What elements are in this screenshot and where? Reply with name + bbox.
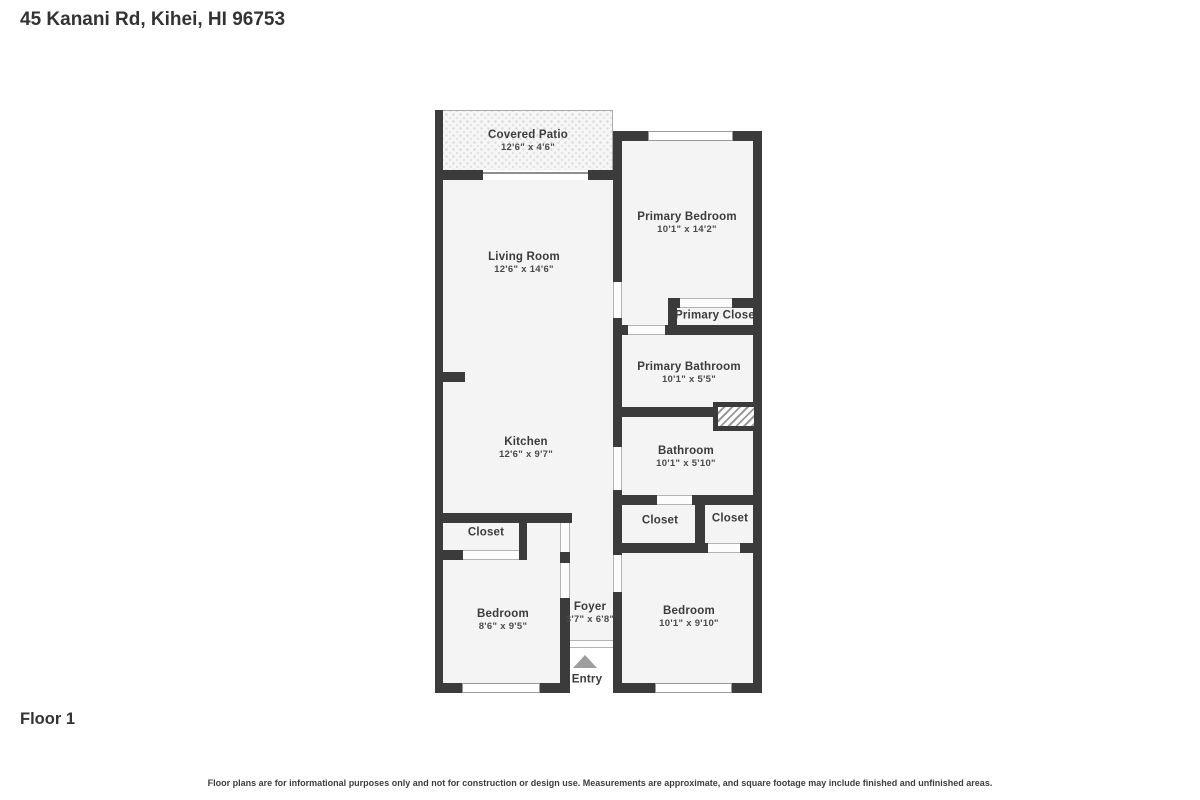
room-name: Bedroom — [659, 605, 719, 618]
door-opening — [708, 543, 740, 553]
address-title: 45 Kanani Rd, Kihei, HI 96753 — [20, 9, 285, 31]
wall — [519, 513, 527, 560]
room-label-closet-right: Closet — [712, 512, 748, 525]
wall — [435, 110, 443, 693]
sliding-door — [483, 170, 588, 180]
door-opening — [463, 550, 519, 560]
door-opening — [613, 282, 622, 318]
room-label-closet-left: Closet — [468, 526, 504, 539]
utility-hatch — [713, 402, 759, 431]
wall — [613, 407, 715, 417]
room-name: Bathroom — [656, 445, 716, 458]
disclaimer-text: Floor plans are for informational purpos… — [0, 778, 1200, 788]
door-opening — [680, 298, 732, 308]
room-dims: 12'6" x 9'7" — [499, 449, 553, 461]
room-label-kitchen: Kitchen 12'6" x 9'7" — [499, 436, 553, 462]
room-name: Closet — [468, 526, 504, 539]
floor-label: Floor 1 — [20, 710, 75, 729]
wall — [665, 325, 762, 335]
door-opening — [613, 555, 622, 592]
door-opening — [628, 325, 665, 335]
room-dims: 10'1" x 5'10" — [656, 458, 716, 470]
door-opening — [560, 563, 570, 598]
room-name: Closet — [642, 514, 678, 527]
room-name: Closet — [712, 512, 748, 525]
wall — [740, 543, 762, 553]
wall — [443, 170, 483, 180]
room-name: Foyer — [566, 601, 615, 614]
room-label-foyer: Foyer 3'7" x 6'8" — [566, 601, 615, 627]
room-label-closet-hall: Closet — [642, 514, 678, 527]
room-dims: 10'1" x 9'10" — [659, 618, 719, 630]
room-label-primary-closet: Primary Closet — [675, 309, 759, 322]
room-name: Primary Bathroom — [637, 361, 741, 374]
window — [655, 683, 732, 693]
door-opening — [657, 495, 692, 505]
wall — [613, 592, 622, 683]
wall — [613, 495, 657, 505]
room-label-primary-bathroom: Primary Bathroom 10'1" x 5'5" — [637, 361, 741, 387]
room-dims: 10'1" x 5'5" — [637, 374, 741, 386]
room-dims: 8'6" x 9'5" — [477, 621, 529, 633]
wall — [613, 131, 622, 282]
room-dims: 12'6" x 14'6" — [488, 264, 560, 276]
room-label-covered-patio: Covered Patio 12'6" x 4'6" — [488, 129, 568, 155]
window — [648, 131, 733, 141]
wall — [435, 550, 463, 560]
door-opening — [613, 447, 622, 490]
room-label-bathroom: Bathroom 10'1" x 5'10" — [656, 445, 716, 471]
room-label-bedroom-left: Bedroom 8'6" x 9'5" — [477, 608, 529, 634]
wall — [560, 552, 570, 563]
floor-plan: Covered Patio 12'6" x 4'6" Living Room 1… — [435, 108, 762, 693]
living-kitchen-area — [443, 170, 622, 523]
entry-threshold — [570, 640, 613, 648]
wall — [588, 170, 613, 180]
room-name: Living Room — [488, 251, 560, 264]
room-name: Bedroom — [477, 608, 529, 621]
room-label-living-room: Living Room 12'6" x 14'6" — [488, 251, 560, 277]
room-name: Primary Closet — [675, 309, 759, 322]
room-name: Kitchen — [499, 436, 553, 449]
wall — [613, 325, 628, 335]
wall — [613, 318, 622, 447]
room-label-bedroom-right: Bedroom 10'1" x 9'10" — [659, 605, 719, 631]
wall — [435, 513, 572, 523]
floor-plan-page: { "header": { "address": "45 Kanani Rd, … — [0, 0, 1200, 800]
entry-arrow-icon — [573, 655, 597, 668]
window — [462, 683, 540, 693]
room-name: Primary Bedroom — [637, 211, 737, 224]
room-dims: 10'1" x 14'2" — [637, 224, 737, 236]
room-label-primary-bedroom: Primary Bedroom 10'1" x 14'2" — [637, 211, 737, 237]
entry-label: Entry — [572, 673, 602, 686]
wall — [732, 298, 762, 308]
door-opening — [560, 523, 570, 552]
wall — [443, 372, 465, 382]
room-dims: 3'7" x 6'8" — [566, 614, 615, 626]
wall — [613, 543, 708, 553]
room-name: Covered Patio — [488, 129, 568, 142]
room-dims: 12'6" x 4'6" — [488, 142, 568, 154]
